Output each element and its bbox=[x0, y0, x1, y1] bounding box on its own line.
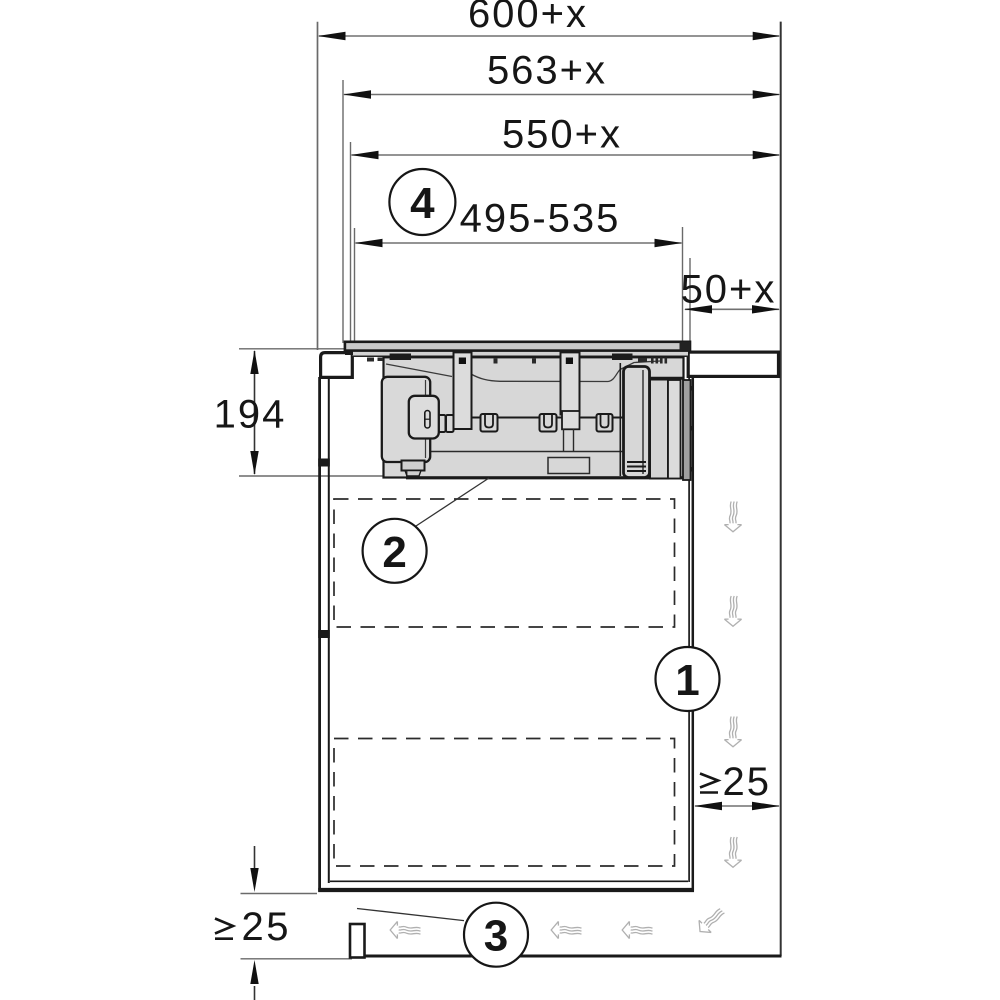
svg-text:3: 3 bbox=[484, 912, 508, 961]
svg-text:50+x: 50+x bbox=[681, 268, 777, 312]
svg-text:600+x: 600+x bbox=[468, 0, 588, 36]
svg-text:550+x: 550+x bbox=[502, 113, 622, 157]
svg-text:25: 25 bbox=[723, 760, 772, 804]
svg-text:4: 4 bbox=[410, 179, 435, 228]
svg-text:25: 25 bbox=[242, 905, 292, 949]
svg-text:1: 1 bbox=[675, 656, 699, 705]
svg-text:563+x: 563+x bbox=[487, 49, 607, 93]
svg-text:2: 2 bbox=[382, 528, 406, 577]
svg-text:495-535: 495-535 bbox=[460, 197, 621, 241]
svg-text:194: 194 bbox=[214, 393, 287, 437]
